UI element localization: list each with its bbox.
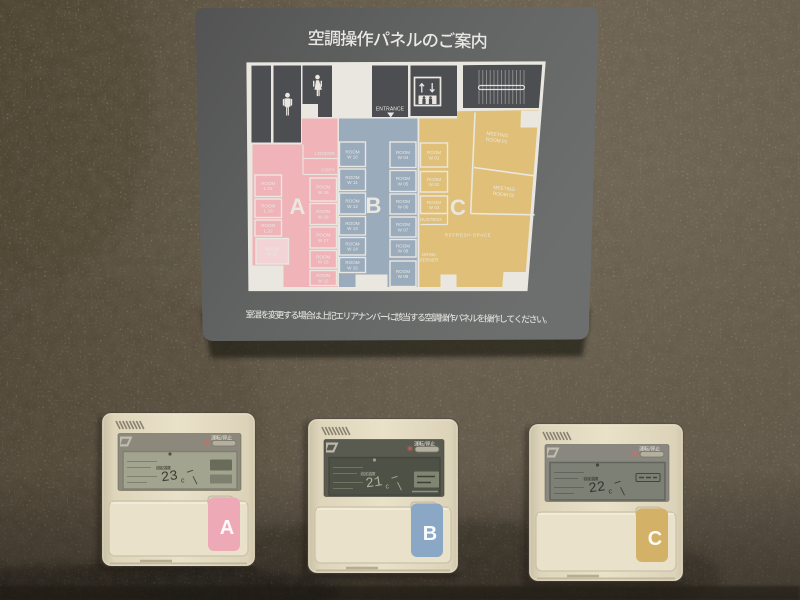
svg-text:W 13: W 13 (347, 226, 358, 231)
svg-text:W 02: W 02 (429, 182, 440, 187)
svg-text:c: c (609, 488, 613, 495)
svg-text:L 22: L 22 (264, 228, 273, 233)
svg-text:W 11: W 11 (347, 180, 358, 185)
svg-text:W 16: W 16 (318, 260, 329, 265)
svg-text:W 08: W 08 (398, 249, 409, 254)
svg-text:c: c (386, 483, 390, 490)
svg-text:DRINK: DRINK (422, 252, 437, 257)
svg-text:C: C (450, 195, 466, 220)
svg-text:W 15: W 15 (318, 278, 329, 283)
svg-text:W 07: W 07 (398, 227, 409, 232)
svg-text:W 03: W 03 (429, 205, 440, 210)
svg-text:L 01: L 01 (264, 186, 273, 191)
svg-text:W 01: W 01 (429, 155, 440, 160)
svg-text:W 17: W 17 (318, 238, 329, 243)
svg-text:21: 21 (365, 474, 384, 492)
svg-text:A: A (290, 194, 306, 219)
svg-text:SERVER: SERVER (420, 258, 439, 263)
svg-text:22: 22 (588, 479, 607, 497)
svg-text:W 12: W 12 (347, 204, 358, 209)
svg-text:W 15: W 15 (347, 265, 358, 270)
svg-text:W 04: W 04 (398, 155, 409, 160)
svg-text:LOCKER: LOCKER (315, 151, 335, 157)
svg-text:W 14: W 14 (347, 247, 358, 252)
svg-text:ENTRANCE: ENTRANCE (376, 107, 405, 113)
svg-text:W 01: W 01 (267, 252, 278, 257)
svg-text:B: B (423, 523, 437, 545)
svg-text:W 06: W 06 (398, 204, 409, 209)
svg-text:A: A (220, 517, 234, 539)
svg-text:W 09: W 09 (398, 274, 409, 279)
svg-text:W 19: W 19 (318, 190, 329, 195)
svg-text:REFRESH SPACE: REFRESH SPACE (445, 233, 492, 239)
svg-text:L 18: L 18 (264, 209, 273, 214)
svg-text:W 18: W 18 (318, 214, 329, 219)
svg-text:C: C (648, 528, 662, 550)
svg-text:COPY: COPY (321, 168, 335, 174)
svg-text:DUSTBOX: DUSTBOX (420, 217, 442, 222)
svg-text:W 05: W 05 (398, 181, 409, 186)
svg-text:W 10: W 10 (347, 155, 358, 160)
svg-text:B: B (366, 193, 382, 218)
svg-text:c: c (181, 477, 185, 484)
svg-text:23: 23 (160, 468, 179, 486)
